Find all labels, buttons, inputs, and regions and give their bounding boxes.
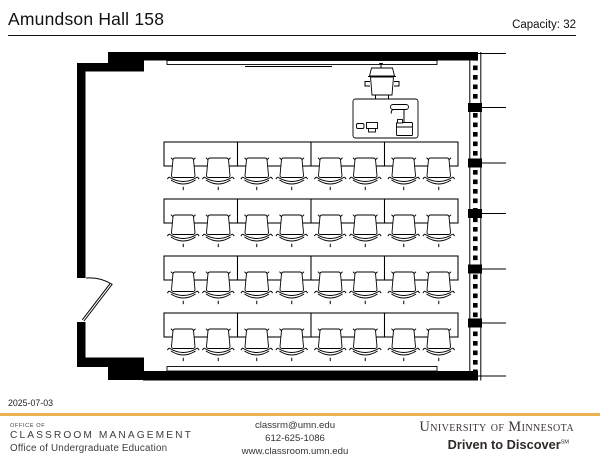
plan-date: 2025-07-03 (8, 398, 53, 408)
instructor-station (353, 64, 418, 139)
footer-office-name: CLASSROOM MANAGEMENT (10, 430, 193, 441)
mouse-icon (357, 124, 365, 129)
footer-contact-block: classrm@umn.edu 612-625-1086 www.classro… (210, 419, 380, 459)
footer-office-sub: Office of Undergraduate Education (10, 443, 193, 454)
gold-divider (0, 413, 600, 416)
room-floor-plan (0, 0, 600, 464)
door-icon (82, 278, 112, 321)
floor-plan-page: Amundson Hall 158 Capacity: 32 (0, 0, 600, 464)
whiteboard-back (167, 367, 437, 372)
keyboard-icon (367, 123, 378, 129)
footer-phone: 612-625-1086 (210, 432, 380, 445)
seating-layer (164, 142, 458, 361)
footer-office-block: OFFICE OF CLASSROOM MANAGEMENT Office of… (10, 423, 193, 454)
footer-brand-block: University of Minnesota Driven to Discov… (419, 419, 574, 452)
window-wall (468, 52, 506, 381)
whiteboard-front (167, 61, 437, 65)
keyboard-tray-icon (369, 129, 376, 133)
footer-office-small: OFFICE OF (10, 423, 193, 429)
footer-email: classrm@umn.edu (210, 419, 380, 432)
university-tagline: Driven to DiscoverSM (419, 437, 569, 452)
exterior-tick-lines (478, 54, 506, 377)
university-wordmark: University of Minnesota (419, 419, 574, 436)
footer-website: www.classroom.umn.edu (210, 445, 380, 458)
instructor-chair-icon (365, 64, 399, 99)
